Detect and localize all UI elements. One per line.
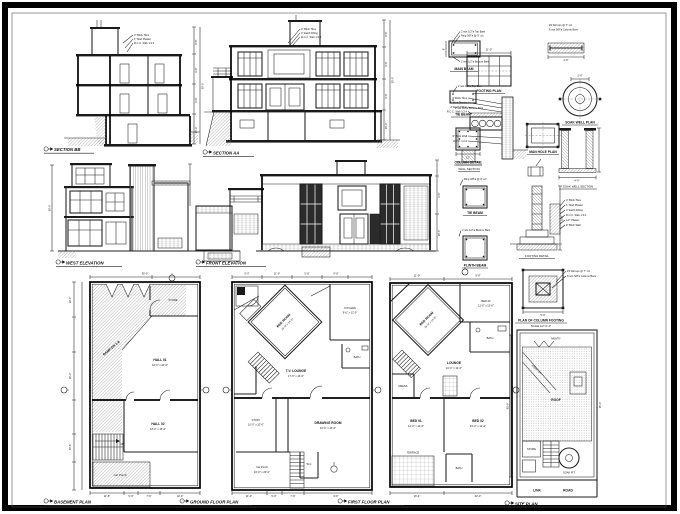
note: 1/2" Plaster <box>566 218 579 222</box>
drawing-title: FRONT ELEVATION <box>206 261 247 266</box>
dim: 30'-0" <box>48 205 52 212</box>
diagonal-bedroom: BED ROOM 16'-0" x 14'-0" <box>240 277 322 359</box>
room-label: DRESS <box>399 384 408 388</box>
room-label: TERRACE <box>407 451 420 455</box>
diagonal-bedroom: BED ROOM 15'-0" x 14'-0" <box>393 285 464 356</box>
detail-title: FOOTING DETAIL <box>525 254 549 258</box>
note: 9" Brick Wall <box>566 223 581 227</box>
grid-bubble-icon <box>223 387 231 393</box>
dim: 65'-0" <box>506 403 510 410</box>
dim: 10'-0" <box>194 127 198 134</box>
room-label: HALL 01 <box>153 358 166 362</box>
roof-label: MUMTY <box>551 337 561 341</box>
detail-title: PLINTH BEAM <box>464 264 487 268</box>
dim: 5'-6" <box>540 313 545 317</box>
dim: 9'-6" <box>384 93 388 98</box>
detail-plinth-beam: 2 nos 1/2"ø Bottom Bars PLINTH BEAM <box>459 228 491 268</box>
section-marker-icon <box>44 147 53 151</box>
section-aa: 4" Brick Tiles 4" Earth Filling R.C.C. S… <box>203 15 400 157</box>
detail-title: FOOTING PLAN <box>477 89 503 93</box>
note: 1" Mud Plaster <box>134 37 151 41</box>
dim: 7'-6" <box>146 494 151 498</box>
room-label: W.C <box>307 462 312 466</box>
room-size: 10'-0" x 12'-0" <box>248 423 264 427</box>
note: #3 Stirrups @ 7" c/c <box>567 269 591 273</box>
grid-bubble-icon <box>201 387 209 393</box>
dim: 9" <box>442 48 446 50</box>
dim: 4'-6" <box>574 179 579 183</box>
note: R.C.C. Slab 1:2:4 <box>134 41 155 45</box>
dim: 8'-6" <box>384 31 388 36</box>
room-label: Car Porch <box>256 465 268 469</box>
drawing-title: BASEMENT PLAN <box>54 500 92 505</box>
site-label: STORE <box>527 447 536 451</box>
dim: 16'-4" <box>414 494 421 498</box>
dim: 7'-6" <box>290 494 295 498</box>
dim: 10'-0" <box>437 230 441 237</box>
dim: 9'-6" <box>333 272 338 276</box>
room-label: STORE <box>169 298 178 302</box>
detail-soak-well-plan: 2'-6" SOAK WELL PLAN <box>559 74 602 126</box>
site-plan: MUMTY RAMP DN ROOF SOAK PIT STORE LINK R… <box>505 330 602 507</box>
room-label: DRAWING ROOM <box>314 421 341 425</box>
stair <box>248 352 279 383</box>
note: 4" Earth Filling <box>450 105 467 109</box>
drawing-title: FIRST FLOOR PLAN <box>348 500 390 505</box>
detail-title: MAIN BEAM <box>454 67 473 71</box>
grid-bubble-icon <box>373 387 381 393</box>
stair <box>393 350 421 378</box>
room-size: 18'-0" x 15'-6" <box>150 427 166 431</box>
note: D.P.C. 1:2:4 <box>453 139 467 143</box>
drawing-title: GROUND FLOOR PLAN <box>190 500 239 505</box>
detail-bar-notes: #3 Stirrups @ 7" c/c 8 nos 5/8"ø Column … <box>548 23 584 62</box>
room-label: LOUNGE <box>447 361 462 365</box>
dim: 5'-6" <box>560 215 564 220</box>
note: 4" Brick Tiles <box>301 27 317 31</box>
detail-title: SCALE 1/2"=1'-0" <box>531 324 552 328</box>
dim: 5'-6" <box>304 272 309 276</box>
dim: 4'-6" <box>563 58 568 62</box>
road-label: LINK <box>533 489 541 493</box>
stair-label: UP <box>120 442 124 446</box>
dim: 5'-0" <box>128 494 133 498</box>
room-size: 16'-0" x 13'-6" <box>320 426 336 430</box>
window-strip <box>300 184 322 244</box>
note: #3 Stirrups @ 7" c/c <box>549 23 573 27</box>
window-strip <box>380 184 400 244</box>
plan-marker-icon <box>338 499 347 503</box>
note: 9" Brick Wall <box>452 134 467 138</box>
room-label: KITCHEN <box>344 306 356 310</box>
dim: 35'-0" <box>142 272 149 276</box>
room-label: STUDY <box>252 418 261 422</box>
elevation-marker-icon <box>56 260 65 264</box>
roof-label: ROOF <box>551 398 561 402</box>
grid-bubble-icon <box>462 267 468 275</box>
dim: 9'-6" <box>194 67 198 72</box>
note: 2 nos 1/2"ø Bottom Bars <box>462 228 491 232</box>
note: R.C.C. Slab 1:2:4 <box>447 110 468 114</box>
room-label: BATH <box>456 466 463 470</box>
dim: 11'-0" <box>414 274 420 278</box>
note: 4" Earth Filling <box>566 208 583 212</box>
dim: 11'-0" <box>274 272 280 276</box>
detail-title: SOAK WELL SECTION <box>563 185 593 189</box>
detail-tie-beam-mid: Ring 3/8"ø @ 9" c/c TIE BEAM <box>460 177 487 216</box>
detail-title: PLAN OF COLUMN FOOTING <box>518 319 564 323</box>
section-marker-icon <box>203 150 212 154</box>
note: 2 nos 1/2"ø Bottom Bars <box>461 60 490 64</box>
room-label: BATH <box>354 355 361 359</box>
dim: 11'-6" <box>104 494 110 498</box>
room-label: Car Porch <box>113 473 126 477</box>
room-size: 9'-6" x 12'-0" <box>343 311 358 315</box>
note: 8 nos 5/8"ø Column Bars <box>567 274 597 278</box>
road-label: ROAD <box>563 489 573 493</box>
dim: 10'-0" <box>384 123 388 130</box>
basement-plan: 35'-0" 10'-0" 16'-0" 15'-6" RAMP DN 1:8 … <box>44 272 209 506</box>
note: 8 nos 5/8"ø Column Bars <box>549 28 579 32</box>
note: 4" Brick Tiles <box>134 33 150 37</box>
note: 4" Brick Tiles <box>566 198 582 202</box>
dim: 9'-6" <box>475 274 480 278</box>
room-size: 17'-6" x 16'-0" <box>288 374 304 378</box>
roof-layer-notes: 4" Brick Tiles 1" Mud Plaster 4" Earth F… <box>550 198 587 234</box>
dim: 5'-0" <box>271 494 276 498</box>
room-size: 16'-0" x 20'-0" <box>254 470 270 474</box>
room-size: 18'-0" x 24'-0" <box>152 363 168 367</box>
note: 4" Earth Filling <box>301 31 318 35</box>
dim: 9'-6" <box>194 97 198 102</box>
room-size: 16'-0" x 12'-6" <box>446 366 462 370</box>
west-elevation: 30'-0" WEST ELEVATION <box>48 163 241 267</box>
dim: 9'-0" <box>244 272 249 276</box>
note: R.C.C. Slab 1:2:4 <box>566 213 587 217</box>
room-label: HALL 02 <box>151 422 164 426</box>
note: Ring 3/8"ø @ 9" c/c <box>464 177 487 181</box>
dim: 11'-0" <box>486 48 492 52</box>
dim: 10'-0" <box>68 297 72 304</box>
room-size: 14'-0" x 12'-6" <box>408 424 424 428</box>
dim: 22'-0" <box>475 494 482 498</box>
drawing-title: WEST ELEVATION <box>66 261 104 266</box>
dim: 11'-0" <box>246 494 252 498</box>
plan-marker-icon <box>44 499 53 503</box>
architectural-sheet: 4" Brick Tiles 1" Mud Plaster R.C.C. Sla… <box>0 0 680 514</box>
dim: 9'-6" <box>333 494 338 498</box>
dim: 15'-6" <box>68 444 72 451</box>
note: Ring 3/8"ø @ 9" c/c <box>461 34 484 38</box>
dim: 16'-0" <box>68 373 72 380</box>
detail-title: SOAK WELL PLAN <box>565 121 595 125</box>
room-size: 16'-0" x 12'-6" <box>470 424 486 428</box>
detail-title: MAN HOLE PLAN <box>529 150 557 154</box>
first-floor-plan: 11'-0" 9'-6" BED ROOM 15'-0" x 14'-0" BE… <box>338 267 519 506</box>
detail-column-footing-plan: #3 Stirrups @ 7" c/c 8 nos 5/8"ø Column … <box>515 269 597 328</box>
plan-marker-icon <box>505 501 514 505</box>
dim: 8'-6" <box>194 39 198 44</box>
section-bb: 4" Brick Tiles 1" Mud Plaster R.C.C. Sla… <box>44 20 205 153</box>
detail-title: WALL SECTION <box>458 167 479 171</box>
drawing-title: SECTION AA <box>213 151 239 156</box>
note: 1" Mud Plaster <box>450 101 467 105</box>
dim: 12'-0" <box>177 494 184 498</box>
dim: 30'-0" <box>391 77 395 84</box>
dim: 9'-6" <box>384 61 388 66</box>
room-label: BATH <box>487 336 494 340</box>
room-label: BED 02 <box>472 419 484 423</box>
room-label: BED 01 <box>410 419 422 423</box>
dim: 35'-0" <box>598 402 602 409</box>
drawing-title: SECTION BB <box>54 147 81 152</box>
ground-floor-plan: 9'-0" 11'-0" 5'-6" 9'-6" BED ROOM 16'-0"… <box>180 272 381 506</box>
detail-main-beam: 2 nos 1/2"ø Top Bars Ring 3/8"ø @ 9" c/c… <box>442 30 490 72</box>
grid-bubble-icon <box>61 387 69 393</box>
detail-title: TIE BEAM <box>467 211 483 215</box>
room-label: BED 03 <box>482 299 491 303</box>
note: 4" Brick Tiles <box>452 96 468 100</box>
room-label: T.V. LOUNGE <box>286 369 307 373</box>
detail-soak-well-section: 4'-6" SOAK WELL SECTION <box>559 128 601 189</box>
drawing-title: SITE PLAN <box>515 502 538 507</box>
site-label: SOAK PIT <box>563 471 575 475</box>
note: R.C.C. Slab 1:2:4 <box>301 35 322 39</box>
detail-man-hole-plan: MAN HOLE PLAN <box>525 122 561 176</box>
drawing-sheet: 4" Brick Tiles 1" Mud Plaster R.C.C. Sla… <box>0 0 680 514</box>
dim: 30'-0" <box>201 83 205 90</box>
note: 1" Mud Plaster <box>566 203 583 207</box>
plan-marker-icon <box>180 499 189 503</box>
dim: 2'-6" <box>577 74 582 78</box>
room-size: 11'-0" x 12'-0" <box>478 304 494 308</box>
note: 2 nos 1/2"ø Top Bars <box>461 30 486 34</box>
dim: 9'-6" <box>437 192 441 197</box>
